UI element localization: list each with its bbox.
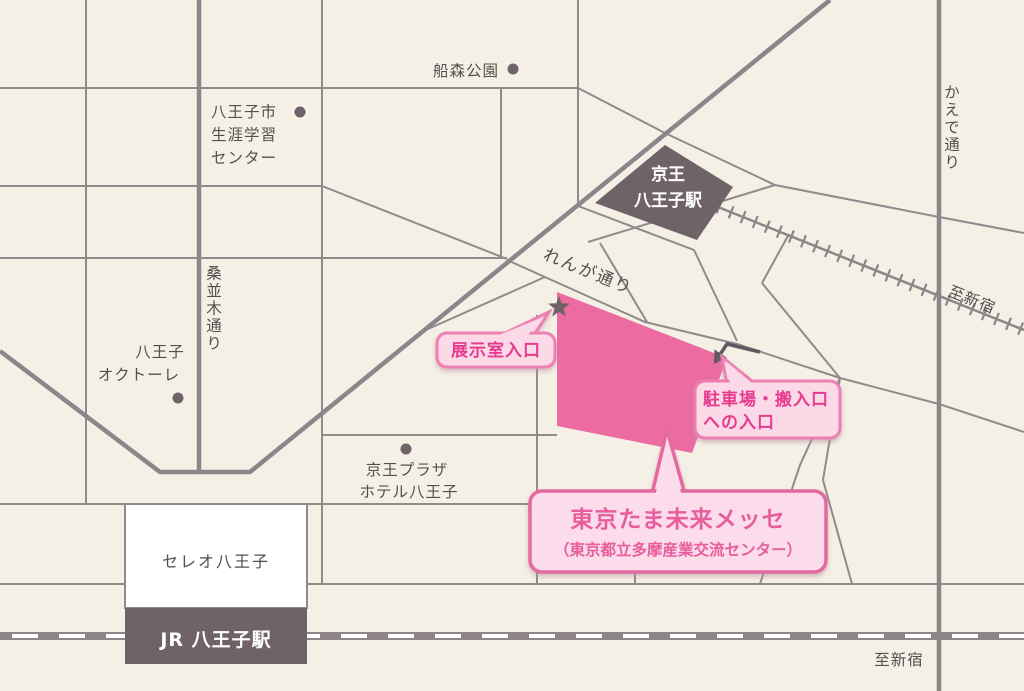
celeo-label: セレオ八王子: [162, 552, 270, 571]
keio-plaza-dot: [401, 444, 412, 455]
octore-dot: [173, 393, 184, 404]
kuwanamiki-street-label: 桑並木通り: [204, 265, 222, 353]
to-shinjuku-bottom-label: 至新宿: [874, 651, 924, 669]
access-map: 船森公園 八王子市 生涯学習 センター 桑並木通り 八王子 オクトーレ 京王 八…: [0, 0, 1024, 691]
exhibition-callout-text: 展示室入口: [451, 340, 541, 361]
keio-station-line1: 京王: [651, 164, 685, 185]
learning-center-line2: 生涯学習: [211, 126, 277, 144]
octore-line1: 八王子: [135, 343, 185, 361]
map-canvas: 船森公園 八王子市 生涯学習 センター 桑並木通り 八王子 オクトーレ 京王 八…: [0, 0, 1024, 691]
funamori-park-label: 船森公園: [433, 62, 499, 80]
parking-callout-line2: への入口: [703, 413, 775, 433]
keio-plaza-line1: 京王プラザ: [366, 461, 449, 479]
jr-station-label: JR 八王子駅: [158, 629, 271, 651]
kaede-street-label: かえで通り: [942, 84, 960, 172]
learning-center-line3: センター: [211, 149, 277, 167]
main-callout-subtitle: （東京都立多摩産業交流センター）: [554, 540, 802, 559]
parking-callout-line1: 駐車場・搬入口: [703, 389, 829, 410]
learning-center-label: 八王子市 生涯学習 センター: [211, 103, 277, 167]
main-callout-title: 東京たま未来メッセ: [570, 506, 785, 533]
octore-line2: オクトーレ: [98, 366, 180, 384]
learning-center-dot: [295, 107, 306, 118]
keio-plaza-line2: ホテル八王子: [359, 483, 458, 501]
keio-station-line2: 八王子駅: [634, 191, 703, 211]
learning-center-line1: 八王子市: [211, 103, 277, 121]
funamori-park-dot: [508, 64, 519, 75]
